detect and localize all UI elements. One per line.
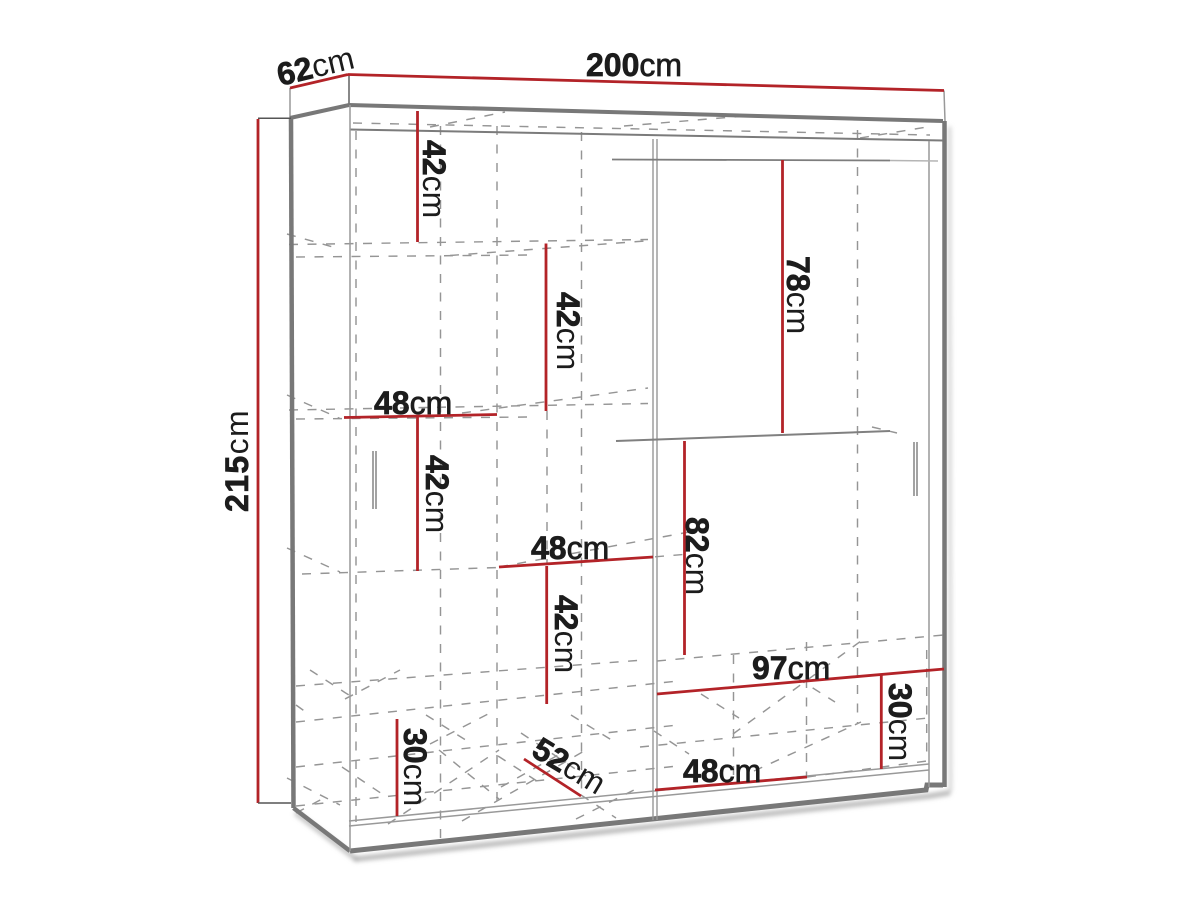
svg-text:42cm: 42cm [548, 595, 584, 673]
svg-text:215cm: 215cm [219, 409, 255, 512]
svg-text:42cm: 42cm [550, 292, 586, 370]
svg-text:42cm: 42cm [419, 455, 455, 533]
svg-text:30cm: 30cm [882, 683, 918, 761]
svg-text:48cm: 48cm [683, 753, 761, 789]
svg-text:200cm: 200cm [586, 47, 682, 83]
svg-text:30cm: 30cm [397, 728, 433, 806]
svg-text:48cm: 48cm [531, 530, 609, 566]
svg-text:97cm: 97cm [752, 650, 830, 686]
svg-text:42cm: 42cm [416, 140, 452, 218]
svg-text:82cm: 82cm [679, 517, 715, 595]
svg-text:48cm: 48cm [374, 385, 452, 421]
svg-text:78cm: 78cm [780, 256, 816, 334]
